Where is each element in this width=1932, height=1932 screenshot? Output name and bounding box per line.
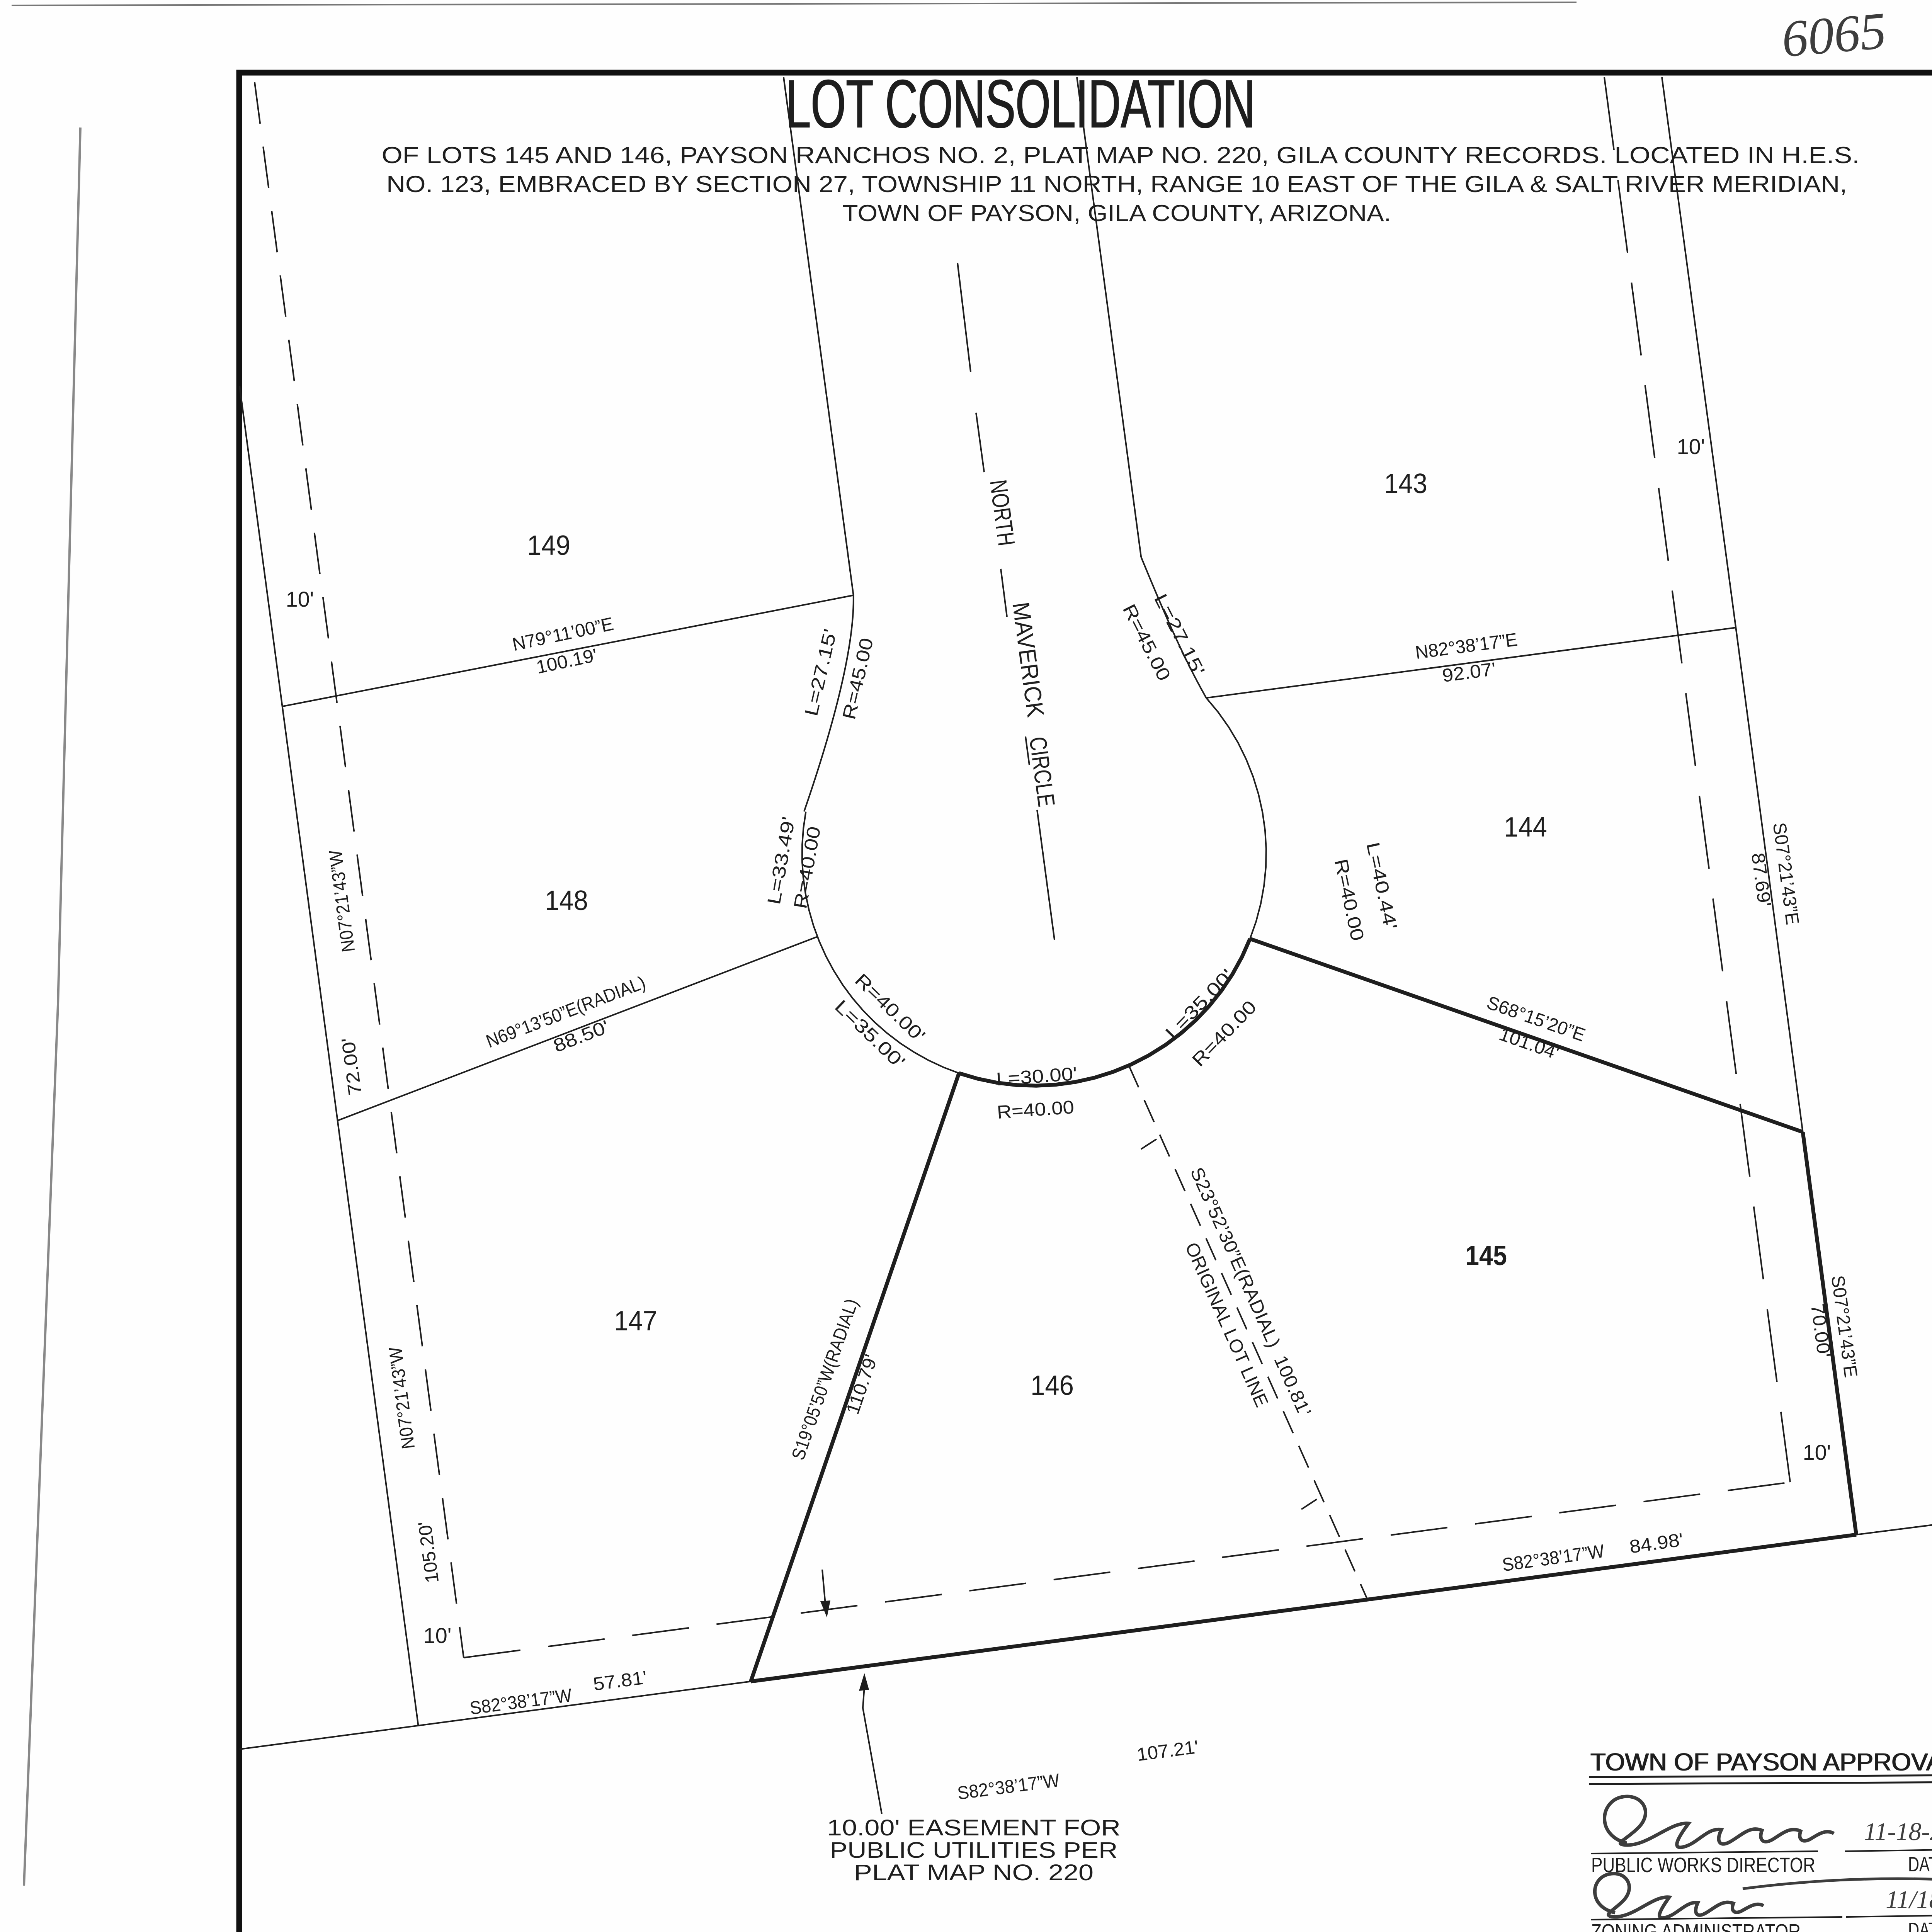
- svg-text:DATE: DATE: [1908, 1918, 1932, 1932]
- svg-text:DATE: DATE: [1908, 1853, 1932, 1876]
- svg-text:10': 10': [423, 1623, 452, 1648]
- svg-text:144: 144: [1504, 812, 1547, 843]
- svg-text:10': 10': [286, 587, 314, 611]
- svg-text:ZONING ADMINISTRATOR: ZONING ADMINISTRATOR: [1591, 1920, 1801, 1932]
- svg-text:147: 147: [614, 1306, 657, 1337]
- svg-text:145: 145: [1465, 1240, 1507, 1271]
- svg-text:LOT CONSOLIDATION: LOT CONSOLIDATION: [786, 65, 1256, 142]
- svg-text:TOWN OF PAYSON, GILA COUNTY, A: TOWN OF PAYSON, GILA COUNTY, ARIZONA.: [842, 200, 1391, 226]
- svg-text:6065: 6065: [1779, 2, 1888, 68]
- svg-text:10.00' EASEMENT FOR: 10.00' EASEMENT FOR: [827, 1815, 1121, 1840]
- svg-text:11/18/25: 11/18/25: [1886, 1886, 1932, 1914]
- svg-text:NO. 123, EMBRACED BY SECTION 2: NO. 123, EMBRACED BY SECTION 27, TOWNSHI…: [386, 171, 1847, 197]
- svg-text:11-18-25: 11-18-25: [1864, 1818, 1932, 1846]
- svg-text:TOWN OF PAYSON APPROVALS: TOWN OF PAYSON APPROVALS: [1591, 1748, 1932, 1776]
- svg-text:148: 148: [545, 885, 588, 916]
- svg-text:10': 10': [1803, 1440, 1831, 1464]
- svg-text:146: 146: [1031, 1370, 1074, 1401]
- svg-text:OF LOTS 145 AND 146, PAYSON RA: OF LOTS 145 AND 146, PAYSON RANCHOS NO. …: [382, 142, 1860, 168]
- svg-text:10': 10': [1677, 434, 1705, 459]
- svg-text:PLAT MAP NO. 220: PLAT MAP NO. 220: [854, 1860, 1094, 1885]
- svg-text:PUBLIC WORKS DIRECTOR: PUBLIC WORKS DIRECTOR: [1591, 1854, 1815, 1877]
- svg-text:PUBLIC UTILITIES PER: PUBLIC UTILITIES PER: [830, 1838, 1118, 1863]
- svg-text:149: 149: [527, 530, 570, 561]
- svg-text:143: 143: [1384, 468, 1427, 499]
